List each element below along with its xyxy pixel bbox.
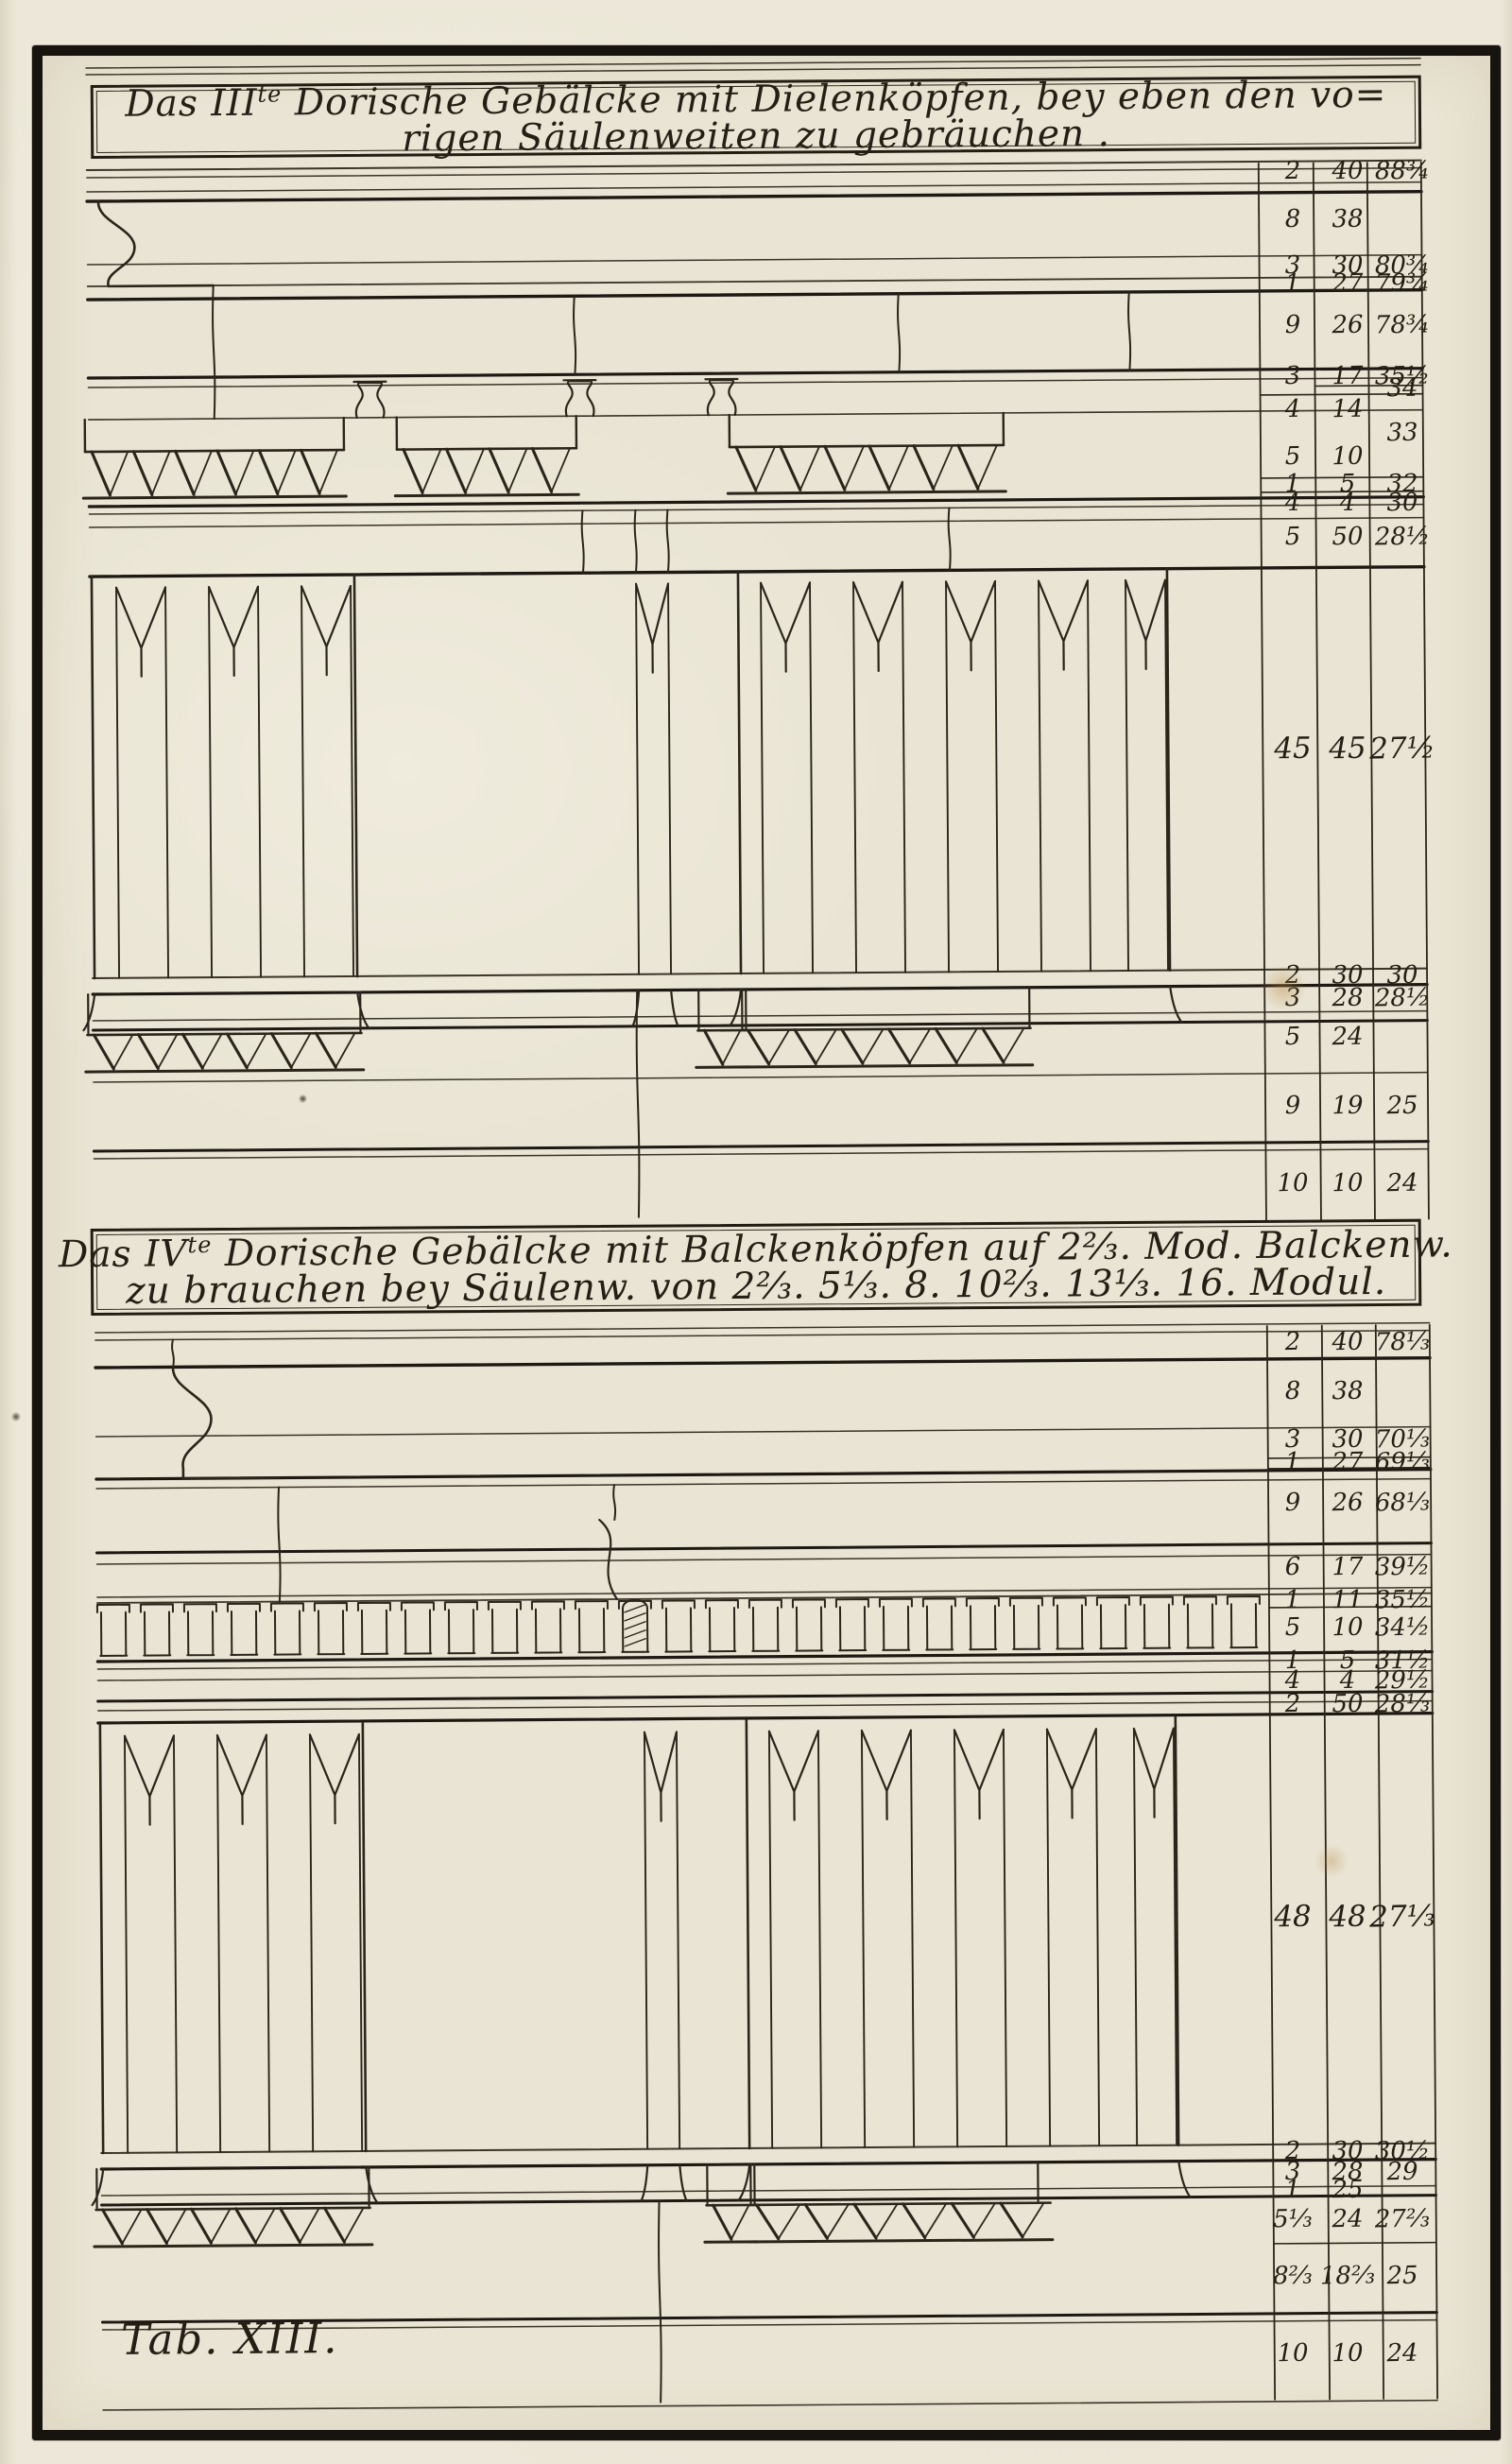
table-cell-sIV-r17-c1: 8⅔ — [1273, 2262, 1313, 2291]
table-cell-sIV-r17-c2: 18⅔ — [1320, 2261, 1376, 2290]
table-cell-sIII-r5-c3: 78¾ — [1375, 310, 1431, 339]
table-cell-sIV-r7-c1: 1 — [1284, 1586, 1300, 1614]
table-cell-sIII-r2-c1: 8 — [1284, 205, 1300, 233]
table-cell-sIII-r2-c2: 38 — [1332, 205, 1364, 234]
table-cell-sIII-r1-c2: 40 — [1332, 157, 1364, 186]
table-cell-sIV-r12-c3: 27⅓ — [1369, 1899, 1435, 1934]
table-cell-sIII-r8-c2: 14 — [1332, 395, 1364, 424]
table-cell-sIII-r5-c1: 9 — [1284, 311, 1300, 339]
table-cell-sIV-r8-c1: 5 — [1284, 1613, 1300, 1642]
table-cell-sIII-r16-c3: 28½ — [1375, 983, 1431, 1012]
table-cell-sIII-r13-c3: 28½ — [1375, 522, 1431, 551]
table-cell-sIV-r1-c3: 78⅓ — [1375, 1327, 1431, 1356]
table-cell-sIII-r18-c2: 19 — [1332, 1092, 1364, 1121]
title-box-section-3: Das IIIte Dorische Gebälcke mit Dielenkö… — [91, 76, 1422, 159]
table-cell-sIII-r19-c1: 10 — [1277, 1169, 1309, 1198]
table-cell-sIII-r6-c2: 17 — [1332, 362, 1364, 391]
table-cell-sIV-r6-c1: 6 — [1284, 1553, 1300, 1581]
table-cell-sIV-r5-c1: 9 — [1284, 1489, 1300, 1517]
table-cell-sIV-r8-c2: 10 — [1332, 1613, 1364, 1643]
table-cell-sIII-r12-c1: 4 — [1284, 489, 1300, 517]
table-cell-sIII-r4-c2: 27 — [1332, 269, 1364, 299]
title-box-section-4: Das IVte Dorische Gebälcke mit Balckenkö… — [91, 1219, 1422, 1316]
table-cell-sIII-r5-c2: 26 — [1332, 311, 1364, 340]
section-3-title-line-2: rigen Säulenweiten zu gebräuchen . — [402, 115, 1110, 157]
table-cell-sIII-r14-c3: 27½ — [1369, 731, 1435, 766]
table-cell-sIV-r17-c3: 25 — [1386, 2262, 1418, 2291]
table-cell-sIV-r11-c2: 50 — [1332, 1690, 1364, 1719]
table-cell-sIII-r19-c2: 10 — [1332, 1169, 1364, 1198]
table-cell-sIII-r14-c1: 45 — [1274, 732, 1312, 767]
section-4-title-line-2: zu brauchen bey Säulenw. von 2⅔. 5⅓. 8. … — [126, 1264, 1386, 1310]
table-cell-sIII-r13-c1: 5 — [1284, 523, 1300, 551]
table-cell-sIV-r5-c3: 68⅓ — [1375, 1488, 1431, 1517]
table-cell-sIII-r8-c1: 4 — [1284, 395, 1300, 423]
table-cell-sIV-r7-c2: 11 — [1332, 1586, 1364, 1615]
table-cell-sIV-r18-c3: 24 — [1386, 2339, 1418, 2369]
table-cell-sIV-r11-c3: 28⅓ — [1375, 1689, 1431, 1718]
table-cell-sIII-r17-c1: 5 — [1284, 1023, 1300, 1051]
table-cell-sIII-r6-c1: 3 — [1284, 362, 1300, 390]
table-cell-sIV-r12-c1: 48 — [1274, 1900, 1312, 1935]
table-cell-sIII-r18-c1: 9 — [1284, 1092, 1300, 1120]
table-cell-sIV-r16-c2: 24 — [1332, 2205, 1364, 2234]
table-cell-sIV-r8-c3: 34½ — [1375, 1612, 1431, 1642]
table-cell-sIII-r18-c3: 25 — [1386, 1092, 1418, 1121]
table-cell-sIII-r13-c2: 50 — [1332, 523, 1364, 552]
table-cell-sIII-r16-c2: 28 — [1332, 984, 1364, 1013]
table-cell-sIII-r1-c1: 2 — [1284, 157, 1300, 185]
table-cell-sIV-r6-c2: 17 — [1332, 1553, 1364, 1582]
title-box-border: Das IIIte Dorische Gebälcke mit Dielenkö… — [96, 81, 1416, 153]
table-cell-sIV-r14-c3: 29 — [1386, 2158, 1418, 2187]
table-cell-sIV-r4-c2: 27 — [1332, 1448, 1364, 1477]
paper-background: Das IIIte Dorische Gebälcke mit Dielenkö… — [0, 0, 1512, 2464]
table-cell-sIV-r5-c2: 26 — [1332, 1489, 1364, 1518]
table-cell-sIV-r1-c1: 2 — [1284, 1328, 1300, 1356]
table-cell-sIII-r12-c2: 4 — [1339, 489, 1355, 517]
table-cell-sIII-r12-c3: 30 — [1386, 489, 1418, 518]
table-cell-sIV-r15-c2: 25 — [1332, 2176, 1364, 2205]
table-cell-sIV-r18-c2: 10 — [1332, 2339, 1364, 2369]
table-cell-sIII-r7-c3: 34 — [1386, 374, 1418, 404]
table-cell-sIV-r2-c2: 38 — [1332, 1377, 1364, 1406]
table-cell-sIV-r6-c3: 39½ — [1375, 1552, 1431, 1581]
table-cell-sIII-r10-c1: 5 — [1284, 442, 1300, 471]
table-cell-sIV-r1-c2: 40 — [1332, 1328, 1364, 1357]
table-cell-sIII-r9-c3: 33 — [1386, 419, 1418, 448]
table-cell-sIII-r14-c2: 45 — [1329, 732, 1366, 767]
table-cell-sIII-r4-c3: 79¾ — [1375, 268, 1431, 298]
table-cell-sIV-r16-c3: 27⅔ — [1375, 2204, 1431, 2233]
table-cell-sIV-r4-c3: 69⅓ — [1375, 1447, 1431, 1476]
plate-number-label: Tab. XIII. — [121, 2313, 339, 2365]
table-cell-sIV-r4-c1: 1 — [1284, 1448, 1300, 1476]
table-cell-sIII-r1-c3: 88¾ — [1375, 156, 1431, 185]
table-cell-sIV-r12-c2: 48 — [1329, 1900, 1366, 1935]
table-cell-sIII-r4-c1: 1 — [1284, 269, 1300, 298]
table-cell-sIV-r15-c1: 1 — [1284, 2176, 1300, 2204]
table-cell-sIV-r11-c1: 2 — [1284, 1690, 1300, 1718]
title-box-border: Das IVte Dorische Gebälcke mit Balckenkö… — [96, 1225, 1417, 1310]
table-cell-sIII-r19-c3: 24 — [1386, 1169, 1418, 1198]
table-cell-sIV-r18-c1: 10 — [1277, 2339, 1309, 2369]
table-cell-sIV-r2-c1: 8 — [1284, 1377, 1300, 1405]
table-cell-sIV-r7-c3: 35½ — [1375, 1585, 1431, 1614]
table-cell-sIV-r16-c1: 5⅓ — [1273, 2205, 1313, 2234]
table-cell-sIII-r10-c2: 10 — [1332, 442, 1364, 472]
table-cell-sIII-r17-c2: 24 — [1332, 1023, 1364, 1052]
table-cell-sIII-r16-c1: 3 — [1284, 984, 1300, 1012]
